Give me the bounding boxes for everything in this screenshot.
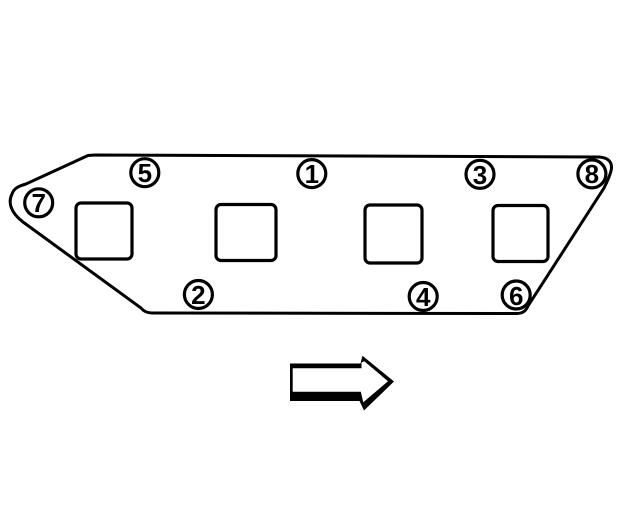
svg-text:1: 1: [305, 159, 319, 189]
svg-text:8: 8: [585, 159, 599, 189]
svg-text:2: 2: [191, 280, 205, 310]
svg-text:6: 6: [509, 281, 523, 311]
svg-text:3: 3: [473, 160, 487, 190]
svg-text:5: 5: [138, 158, 152, 188]
svg-text:4: 4: [416, 282, 431, 312]
svg-text:7: 7: [31, 188, 45, 218]
